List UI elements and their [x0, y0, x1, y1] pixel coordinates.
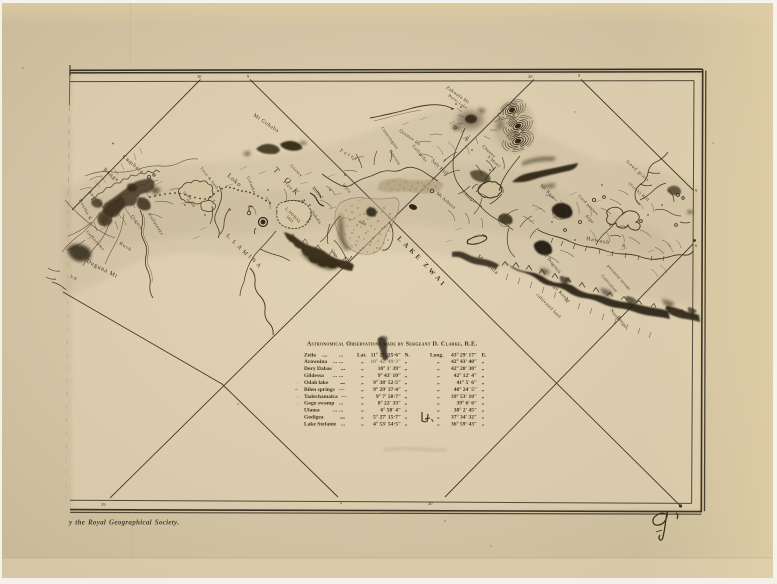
- svg-text:...: ...: [333, 373, 338, 379]
- svg-text:10° 1′ 39″: 10° 1′ 39″: [378, 365, 401, 372]
- svg-text:9° 7′ 58·7″: 9° 7′ 58·7″: [376, 393, 401, 400]
- svg-text:Long.: Long.: [430, 352, 444, 358]
- svg-text:„: „: [437, 373, 440, 379]
- svg-text:Arowoina: Arowoina: [304, 359, 327, 365]
- svg-text:„: „: [405, 401, 408, 407]
- svg-text:8° 22′ 33″: 8° 22′ 33″: [378, 400, 401, 407]
- svg-text:6° 58′ 4″: 6° 58′ 4″: [380, 407, 401, 414]
- svg-text:„: „: [482, 408, 485, 414]
- svg-text:„: „: [361, 394, 364, 400]
- svg-text:„: „: [437, 380, 440, 386]
- svg-text:...: ...: [339, 408, 344, 414]
- svg-text:„: „: [437, 359, 440, 365]
- svg-text:Lake Stefanie: Lake Stefanie: [304, 422, 337, 428]
- svg-text:„: „: [361, 373, 364, 379]
- svg-text:„: „: [405, 408, 408, 414]
- svg-text:Gildessa: Gildessa: [304, 373, 324, 379]
- svg-text:Zeila: Zeila: [304, 352, 316, 358]
- svg-text:Godigea: Godigea: [304, 415, 324, 421]
- svg-text:„: „: [405, 394, 408, 400]
- svg-text:2: 2: [340, 500, 342, 505]
- svg-text:4° 53′ 54·5″: 4° 53′ 54·5″: [373, 421, 401, 428]
- svg-text:„: „: [361, 422, 364, 428]
- svg-text:39° 53′ 10″: 39° 53′ 10″: [451, 393, 477, 400]
- svg-text:42° 12′ 4″: 42° 12′ 4″: [454, 372, 477, 379]
- svg-text:„: „: [437, 422, 440, 428]
- svg-text:„: „: [405, 387, 408, 393]
- svg-text:...: ...: [333, 408, 338, 414]
- svg-text:„: „: [361, 401, 364, 407]
- svg-text:„: „: [482, 380, 485, 386]
- svg-text:„: „: [405, 415, 408, 421]
- svg-text:„: „: [405, 366, 408, 372]
- svg-text:—: —: [338, 387, 345, 393]
- svg-text:Lat.: Lat.: [357, 352, 367, 358]
- svg-text:42° 28′ 30″: 42° 28′ 30″: [451, 365, 477, 372]
- svg-text:Bilen springs: Bilen springs: [304, 387, 335, 393]
- svg-text:...: ...: [339, 401, 344, 407]
- svg-text:„: „: [361, 415, 364, 421]
- svg-text:37° 34′ 32″: 37° 34′ 32″: [451, 414, 477, 421]
- svg-text:...: ...: [339, 352, 344, 358]
- svg-text:9° 29′ 37·4″: 9° 29′ 37·4″: [373, 386, 401, 393]
- svg-text:„: „: [482, 366, 485, 372]
- svg-text:„: „: [482, 401, 485, 407]
- svg-text:42° 43′ 40″: 42° 43′ 40″: [451, 358, 477, 365]
- svg-text:43° 29′ 17″: 43° 29′ 17″: [451, 351, 477, 358]
- svg-text:....: ....: [322, 352, 328, 358]
- svg-text:...: ...: [333, 359, 338, 365]
- svg-text:36° 59′ 43″: 36° 59′ 43″: [451, 421, 477, 428]
- svg-text:R.: R.: [622, 243, 627, 249]
- svg-text:9° 38′ 52·5″: 9° 38′ 52·5″: [373, 379, 401, 386]
- svg-text:Tadechamalca: Tadechamalca: [304, 394, 338, 400]
- svg-text:...: ...: [341, 366, 346, 372]
- svg-text:E.: E.: [482, 352, 488, 358]
- svg-text:„: „: [482, 415, 485, 421]
- svg-text:„: „: [482, 373, 485, 379]
- svg-text:„: „: [361, 380, 364, 386]
- svg-text:Odah lake: Odah lake: [304, 380, 329, 386]
- svg-text:„: „: [437, 408, 440, 414]
- svg-text:N.: N.: [405, 352, 411, 358]
- svg-text:29: 29: [101, 502, 106, 507]
- svg-text:41° 5′ 6″: 41° 5′ 6″: [456, 379, 477, 386]
- svg-text:„: „: [437, 401, 440, 407]
- svg-text:38° 2′ 45″: 38° 2′ 45″: [454, 407, 477, 414]
- svg-text:39° 6′ 6″: 39° 6′ 6″: [456, 400, 477, 407]
- svg-text:„: „: [437, 394, 440, 400]
- svg-text:„: „: [361, 359, 364, 365]
- svg-text:29: 29: [528, 74, 533, 79]
- svg-text:„: „: [437, 366, 440, 372]
- svg-text:5° 27′ 15·7″: 5° 27′ 15·7″: [373, 414, 401, 421]
- svg-text:„: „: [482, 394, 485, 400]
- svg-text:y the Royal Geographical Socie: y the Royal Geographical Society.: [68, 519, 179, 527]
- svg-text:„: „: [482, 387, 485, 393]
- svg-text:„: „: [361, 366, 364, 372]
- svg-text:...: ...: [341, 422, 346, 428]
- svg-text:...: ...: [339, 373, 344, 379]
- svg-text:„: „: [437, 415, 440, 421]
- svg-text:„: „: [482, 359, 485, 365]
- svg-text:...: ...: [341, 415, 346, 421]
- svg-text:Dery Dabas: Dery Dabas: [304, 366, 332, 372]
- svg-text:20: 20: [428, 501, 433, 506]
- svg-text:„: „: [361, 387, 364, 393]
- svg-text:9° 43′ 10″: 9° 43′ 10″: [378, 372, 401, 379]
- svg-text:„: „: [482, 422, 485, 428]
- svg-text:„: „: [405, 422, 408, 428]
- svg-text:„: „: [405, 359, 408, 365]
- svg-text:—: —: [340, 394, 347, 400]
- svg-text:„: „: [361, 408, 364, 414]
- svg-text:„: „: [405, 380, 408, 386]
- svg-text:40° 24′ 5″: 40° 24′ 5″: [454, 386, 477, 393]
- svg-text:30: 30: [197, 74, 202, 79]
- svg-text:Ulama: Ulama: [304, 408, 320, 414]
- svg-text:Gogo swamp: Gogo swamp: [304, 401, 334, 407]
- svg-text:–: –: [294, 387, 298, 393]
- svg-text:...: ...: [339, 359, 344, 365]
- svg-text:„: „: [437, 387, 440, 393]
- svg-text:Astronomical Observations made: Astronomical Observations made by Sergea…: [307, 341, 478, 348]
- svg-text:...: ...: [341, 380, 346, 386]
- svg-text:„: „: [405, 373, 408, 379]
